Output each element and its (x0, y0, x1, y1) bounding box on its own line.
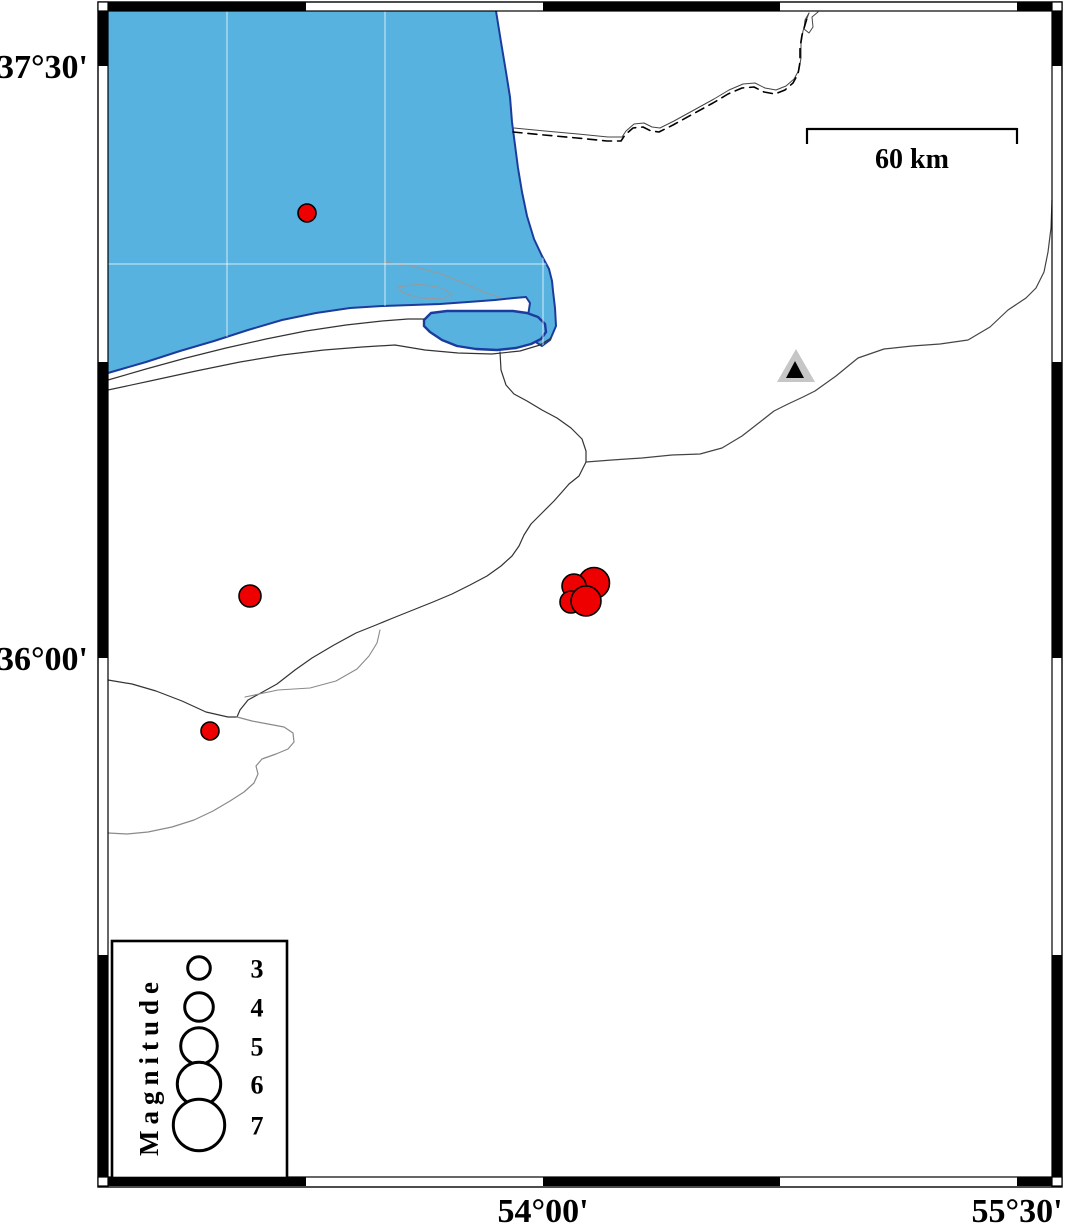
lat-label-3730: 37°30' (0, 49, 88, 86)
legend-magnitude-value: 3 (251, 955, 264, 984)
legend-magnitude-value: 5 (251, 1033, 264, 1062)
legend-magnitude-circle (173, 1099, 224, 1150)
legend-magnitude-value: 6 (251, 1071, 264, 1100)
seismicity-map-figure: 34567 37°30' 36°00' 54°00' 55°30' 60 km … (0, 0, 1066, 1225)
river-fork (245, 630, 380, 697)
frame-corner-square (1052, 1177, 1062, 1186)
frame-corner-square (1052, 2, 1062, 11)
gorgan-bay (424, 311, 546, 350)
frame-segment-top (108, 2, 306, 11)
scale-bar (807, 128, 1017, 144)
frame-segment-right (1052, 955, 1062, 1177)
lon-label-5400: 54°00' (497, 1193, 588, 1225)
legend-magnitude-value: 7 (251, 1112, 264, 1141)
frame-segment-left (98, 362, 108, 658)
frame-segment-left (98, 11, 108, 66)
frame-segment-bottom (1017, 1177, 1052, 1186)
earthquake-marker (239, 585, 261, 607)
river-from-bay (500, 352, 586, 462)
frame-segment-top (1017, 2, 1052, 11)
coast-southwest (237, 462, 586, 717)
frame-corner-square (98, 2, 108, 11)
lon-label-5530: 55°30' (971, 1193, 1062, 1225)
map-canvas: 34567 37°30' 36°00' 54°00' 55°30' 60 km … (0, 0, 1066, 1225)
frame-segment-right (1052, 362, 1062, 658)
frame-segment-bottom (543, 1177, 780, 1186)
earthquake-marker (298, 204, 316, 222)
lat-label-3600: 36°00' (0, 641, 88, 678)
frame-corner-square (98, 1177, 108, 1186)
legend-magnitude-circle (185, 993, 214, 1022)
legend-magnitude-circle (181, 1028, 218, 1065)
geography-layer (108, 11, 1052, 834)
border-river-solid (514, 13, 809, 137)
legend-title: Magnitude (134, 976, 164, 1156)
earthquake-marker (201, 722, 219, 740)
earthquake-marker (571, 586, 601, 616)
border-dashed (513, 15, 808, 141)
legend-magnitude-value: 4 (251, 994, 264, 1023)
river-east (586, 200, 1052, 462)
frame-segment-right (1052, 11, 1062, 66)
scale-bar-label: 60 km (875, 144, 949, 175)
line-to-west-edge (108, 680, 237, 717)
frame-segment-top (543, 2, 780, 11)
legend-magnitude-circle (188, 957, 211, 980)
frame-segment-left (98, 955, 108, 1177)
